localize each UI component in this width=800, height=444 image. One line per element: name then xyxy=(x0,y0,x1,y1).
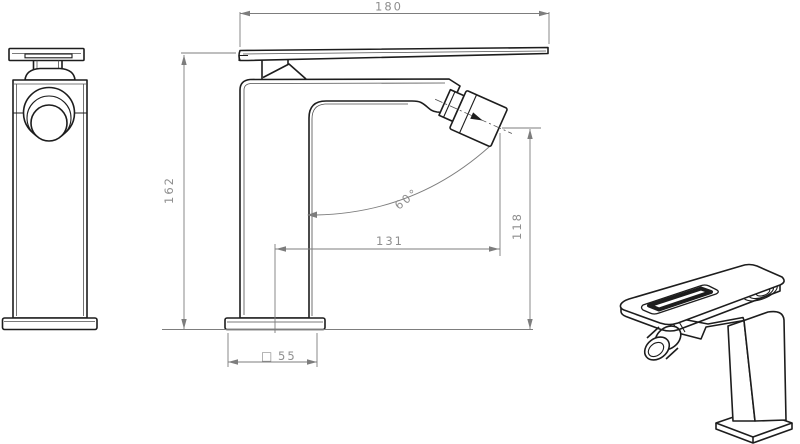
perspective-view xyxy=(620,265,792,444)
technical-drawing: 180 162 131 xyxy=(0,0,800,444)
dome xyxy=(25,69,75,81)
drawing-canvas: 180 162 131 xyxy=(0,0,800,444)
dim-base-size-label: 55 xyxy=(278,349,297,363)
dim-spout-reach-label: 131 xyxy=(376,234,404,248)
handle xyxy=(239,48,548,61)
square-section-symbol: □ xyxy=(261,349,272,363)
dim-aerator-height: 118 xyxy=(502,128,541,329)
handle-stem xyxy=(262,60,306,79)
body xyxy=(240,79,460,318)
base xyxy=(3,318,98,330)
dim-base-square: □ 55 xyxy=(228,333,317,367)
handle xyxy=(9,49,84,61)
front-view xyxy=(3,49,98,330)
handle-stem xyxy=(25,61,75,81)
body xyxy=(728,312,786,421)
dim-spray-angle: 60° xyxy=(392,185,421,212)
dim-spray-angle-label: 60° xyxy=(392,185,421,212)
dim-total-width: 180 xyxy=(240,0,549,47)
side-view: 180 162 131 xyxy=(162,0,549,367)
dim-aerator-height-label: 118 xyxy=(510,212,524,240)
dim-total-height: 162 xyxy=(162,53,236,329)
dim-total-height-label: 162 xyxy=(162,176,176,204)
dim-total-width-label: 180 xyxy=(375,0,403,14)
